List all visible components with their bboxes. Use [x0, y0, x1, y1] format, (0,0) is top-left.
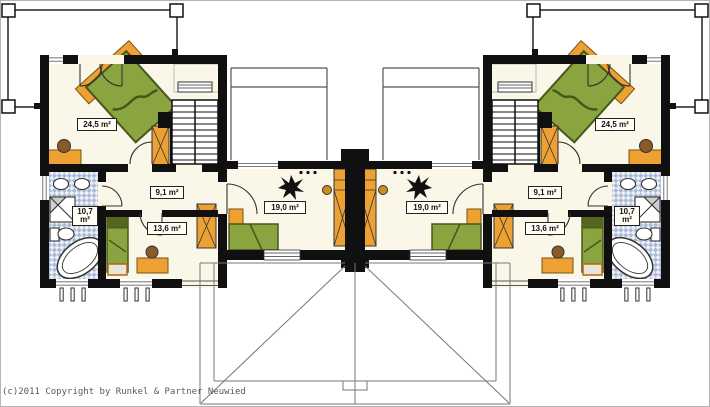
staircase	[172, 100, 218, 164]
desk	[137, 258, 168, 273]
floor-plan-drawing	[0, 0, 710, 407]
room-label-bedroom-small-right: 13,6 m²	[525, 222, 565, 235]
room-label-bedroom-large-right: 24,5 m²	[595, 118, 635, 131]
wardrobe	[152, 126, 169, 166]
floor-plan-page: 24,5 m² 9,1 m² 13,6 m² 10,7 m² 19,0 m² 2…	[0, 0, 710, 407]
nightstand	[108, 264, 127, 275]
sink	[54, 179, 69, 190]
room-label-bathroom-right: 10,7 m²	[614, 206, 640, 226]
chair-person	[58, 140, 71, 153]
room-label-bedroom-large-left: 24,5 m²	[77, 118, 117, 131]
room-label-living-left: 19,0 m²	[264, 201, 306, 214]
sink	[75, 179, 90, 190]
balcony-anchor	[34, 103, 41, 109]
room-label-living-right: 19,0 m²	[406, 201, 448, 214]
toilet	[58, 228, 74, 240]
room-label-hallway-right: 9,1 m²	[528, 186, 562, 199]
dormer-outline	[231, 68, 327, 160]
facade-posts	[60, 288, 149, 301]
copyright-text: (c)2011 Copyright by Runkel & Partner Ne…	[2, 387, 246, 397]
balcony-post	[170, 4, 183, 17]
room-label-bedroom-small-left: 13,6 m²	[147, 222, 187, 235]
balcony-post	[2, 4, 15, 17]
balcony-post	[2, 100, 15, 113]
stool	[323, 186, 332, 195]
wall-dot	[313, 171, 316, 174]
wall-dot	[306, 171, 309, 174]
chair-person	[146, 246, 158, 258]
balcony-anchor	[172, 49, 178, 56]
wall-dot	[299, 171, 302, 174]
room-label-hallway-left: 9,1 m²	[150, 186, 184, 199]
room-label-bathroom-left: 10,7 m²	[72, 206, 98, 226]
